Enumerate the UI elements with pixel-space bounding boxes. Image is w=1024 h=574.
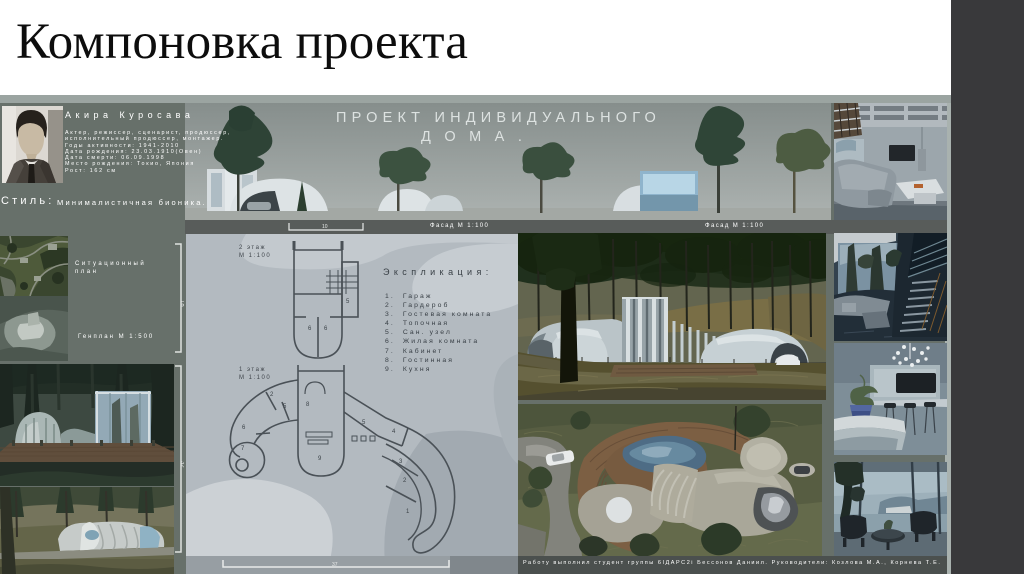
svg-text:32: 32 [179, 461, 184, 468]
svg-text:10: 10 [322, 224, 328, 230]
svg-text:37: 37 [332, 562, 338, 568]
svg-text:18: 18 [179, 300, 184, 307]
